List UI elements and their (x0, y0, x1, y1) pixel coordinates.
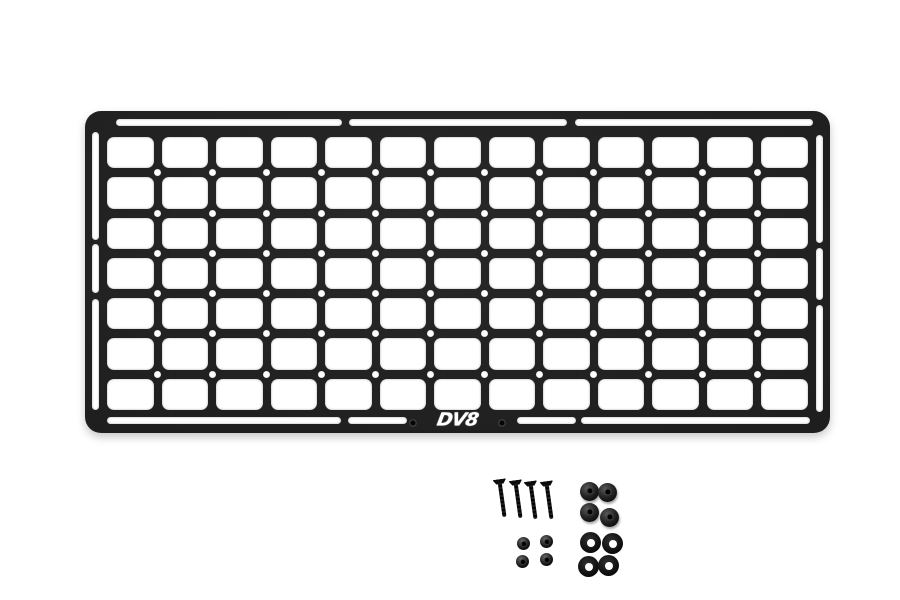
molle-cutout (216, 258, 263, 289)
mounting-slot-right (816, 248, 823, 300)
screw-shaft-icon (498, 483, 507, 517)
molle-cutout (707, 218, 754, 249)
mounting-hole (263, 210, 270, 217)
mounting-hole (318, 210, 325, 217)
mounting-hole (209, 330, 216, 337)
mounting-hole (754, 371, 761, 378)
molle-cutout (434, 379, 481, 410)
molle-cutout (652, 338, 699, 369)
molle-cutout (652, 298, 699, 329)
mounting-hole (645, 371, 652, 378)
molle-cutout (598, 258, 645, 289)
mounting-slot-left (92, 299, 99, 410)
mounting-hole (318, 250, 325, 257)
molle-cutout (652, 177, 699, 208)
molle-cutout (761, 298, 808, 329)
molle-cutout (162, 137, 209, 168)
molle-cutout (271, 218, 318, 249)
mounting-hole (154, 371, 161, 378)
molle-cutout (761, 177, 808, 208)
washer (602, 533, 623, 554)
mounting-hole (209, 250, 216, 257)
molle-cutout (216, 379, 263, 410)
product-photo: DV8 (0, 0, 900, 600)
mounting-slot-bottom (517, 417, 576, 424)
molle-cutout (325, 137, 372, 168)
molle-cutout (162, 218, 209, 249)
molle-cutout (380, 177, 427, 208)
molle-cutout (707, 258, 754, 289)
mounting-slot-top (575, 119, 813, 126)
mounting-hole (536, 371, 543, 378)
molle-cutout (162, 258, 209, 289)
mounting-hole (536, 250, 543, 257)
mounting-slot-bottom (581, 417, 810, 424)
nut (540, 553, 553, 566)
mounting-slot-left (92, 244, 99, 293)
molle-cutout (325, 338, 372, 369)
molle-cutout (434, 338, 481, 369)
molle-cutout (107, 258, 154, 289)
molle-cutout (162, 379, 209, 410)
molle-cutout (271, 137, 318, 168)
molle-cutout (107, 338, 154, 369)
mounting-slot-left (92, 132, 99, 240)
molle-cutout (271, 379, 318, 410)
molle-cutout (598, 137, 645, 168)
molle-cutout (434, 298, 481, 329)
molle-cutout (489, 218, 536, 249)
molle-cutout (325, 218, 372, 249)
mounting-slot-top (349, 119, 567, 126)
molle-panel: DV8 (85, 111, 830, 433)
molle-cutout (434, 218, 481, 249)
mounting-hole (427, 250, 434, 257)
mounting-hole (263, 250, 270, 257)
molle-cutout (162, 177, 209, 208)
mounting-slot-right (816, 305, 823, 412)
molle-cutout (216, 218, 263, 249)
mounting-hole (318, 290, 325, 297)
molle-cutout (652, 258, 699, 289)
mounting-hole (318, 371, 325, 378)
molle-cutout (761, 258, 808, 289)
screw-shaft-icon (529, 485, 538, 519)
molle-cutout (107, 298, 154, 329)
logo-side-hole (409, 419, 417, 427)
molle-cutout (598, 379, 645, 410)
molle-cutout (325, 379, 372, 410)
mounting-slot-bottom (348, 417, 407, 424)
mounting-hole (209, 210, 216, 217)
molle-cutout (216, 137, 263, 168)
mounting-hole (427, 290, 434, 297)
mounting-hole (372, 250, 379, 257)
mounting-hole (372, 371, 379, 378)
molle-cutout (380, 258, 427, 289)
molle-cutout (707, 177, 754, 208)
molle-cutout (162, 298, 209, 329)
molle-cutout (598, 298, 645, 329)
mounting-hole (154, 250, 161, 257)
molle-cutout (271, 177, 318, 208)
mounting-hole (209, 371, 216, 378)
molle-cutout (707, 379, 754, 410)
molle-cutout (216, 298, 263, 329)
mounting-slot-bottom (107, 417, 341, 424)
molle-cutout (543, 338, 590, 369)
molle-cutout (380, 338, 427, 369)
spacer (600, 508, 619, 527)
molle-cutout (434, 177, 481, 208)
molle-cutout (162, 338, 209, 369)
molle-cutout (489, 338, 536, 369)
mounting-slot-top (116, 119, 342, 126)
spacer (598, 483, 617, 502)
molle-cutout (271, 298, 318, 329)
molle-cutout (434, 258, 481, 289)
molle-cutout (380, 379, 427, 410)
molle-cutout (761, 338, 808, 369)
nut (517, 537, 530, 550)
mounting-hole (318, 169, 325, 176)
molle-cutout (325, 298, 372, 329)
mounting-hole (645, 210, 652, 217)
molle-cutout (434, 137, 481, 168)
molle-cutout (707, 137, 754, 168)
molle-cutout (380, 298, 427, 329)
molle-cutout (380, 137, 427, 168)
mounting-hole (481, 210, 488, 217)
molle-cutout (543, 298, 590, 329)
molle-cutout (598, 218, 645, 249)
dv8-logo-text: DV8 (436, 411, 480, 429)
molle-cutout (489, 177, 536, 208)
mounting-slot-right (816, 135, 823, 243)
molle-cutout (707, 338, 754, 369)
molle-cutout (271, 338, 318, 369)
molle-cutout (543, 218, 590, 249)
logo-side-hole (498, 419, 506, 427)
molle-cutout (543, 177, 590, 208)
mounting-hole (427, 169, 434, 176)
washer (598, 555, 619, 576)
nut (516, 555, 529, 568)
mounting-hole (209, 169, 216, 176)
mounting-hole (645, 250, 652, 257)
spacer (580, 482, 599, 501)
molle-cutout (598, 177, 645, 208)
molle-cutout (598, 338, 645, 369)
molle-cutout (543, 258, 590, 289)
molle-cutout (489, 258, 536, 289)
molle-cutout (543, 379, 590, 410)
mounting-hole (754, 250, 761, 257)
mounting-hole (481, 371, 488, 378)
molle-cutout (543, 137, 590, 168)
molle-cutout (707, 298, 754, 329)
molle-cutout (489, 137, 536, 168)
washer (578, 556, 599, 577)
molle-cutout (380, 218, 427, 249)
molle-cutout (107, 137, 154, 168)
mounting-hole (699, 210, 706, 217)
screw-shaft-icon (514, 484, 523, 518)
mounting-hole (154, 210, 161, 217)
molle-cutout (216, 177, 263, 208)
screw-shaft-icon (545, 485, 554, 519)
nut (540, 535, 553, 548)
mounting-hole (427, 371, 434, 378)
molle-cutout (325, 258, 372, 289)
mounting-hole (536, 290, 543, 297)
molle-cutout (107, 177, 154, 208)
mounting-hole (590, 210, 597, 217)
molle-cutout (761, 379, 808, 410)
molle-cutout (761, 218, 808, 249)
molle-cutout (761, 137, 808, 168)
molle-cutout (652, 137, 699, 168)
mounting-hole (427, 210, 434, 217)
washer (580, 532, 601, 553)
mounting-hole (754, 210, 761, 217)
molle-cutout (216, 338, 263, 369)
molle-cutout (489, 379, 536, 410)
mounting-hole (536, 210, 543, 217)
molle-cutout (652, 218, 699, 249)
spacer (580, 503, 599, 522)
molle-grid (107, 137, 808, 410)
mounting-hole (372, 210, 379, 217)
molle-cutout (489, 298, 536, 329)
molle-cutout (271, 258, 318, 289)
mounting-hole (263, 371, 270, 378)
mounting-hole (209, 290, 216, 297)
molle-cutout (652, 379, 699, 410)
molle-cutout (107, 218, 154, 249)
mounting-hole (645, 290, 652, 297)
molle-cutout (107, 379, 154, 410)
molle-cutout (325, 177, 372, 208)
